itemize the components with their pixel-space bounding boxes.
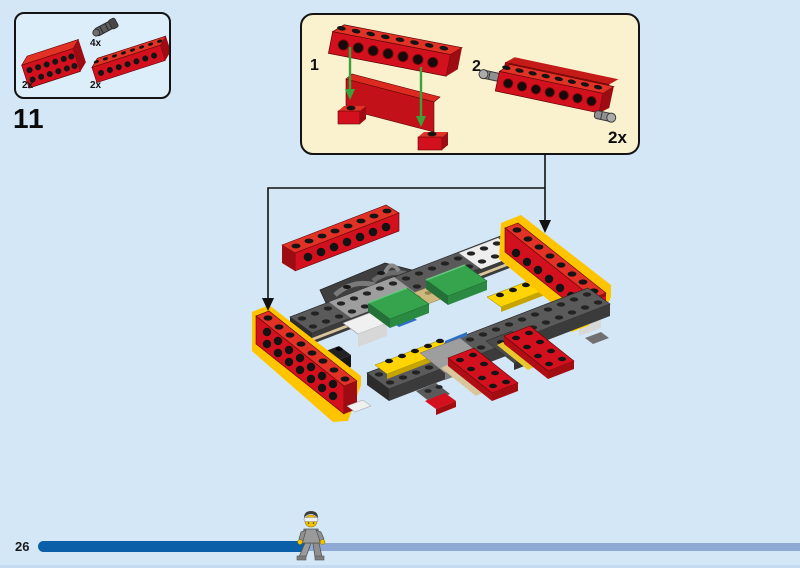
walking-minifigure-icon xyxy=(294,510,330,566)
step-number: 11 xyxy=(13,103,45,135)
part-qty-bracket: 2x xyxy=(22,80,33,91)
technic-pin-icon xyxy=(91,17,119,38)
prev-red-brick xyxy=(282,205,399,271)
substep1-brick xyxy=(328,23,462,78)
parts-inventory-panel: 4x 2x 2x xyxy=(14,12,171,99)
page-number: 26 xyxy=(15,539,29,554)
red-technic-brick-1x8-icon xyxy=(90,36,169,83)
progress-bar-done xyxy=(38,541,310,552)
instruction-page: 4x 2x 2x 11 xyxy=(0,0,800,568)
substep2-assembly xyxy=(475,51,624,123)
inserted-pin-right-icon xyxy=(594,110,617,123)
progress-bar-remaining xyxy=(302,543,800,551)
part-qty-pin: 4x xyxy=(90,38,101,49)
callout-quantity-label: 2x xyxy=(608,128,627,148)
subassembly-illustrations xyxy=(302,15,638,153)
part-qty-brick: 2x xyxy=(90,80,101,91)
subassembly-callout-panel: 1 2 xyxy=(300,13,640,155)
substep1-bracket xyxy=(338,74,448,150)
substep-2-label: 2 xyxy=(472,58,481,76)
main-model-illustration xyxy=(235,195,635,455)
substep-1-label: 1 xyxy=(310,57,319,75)
